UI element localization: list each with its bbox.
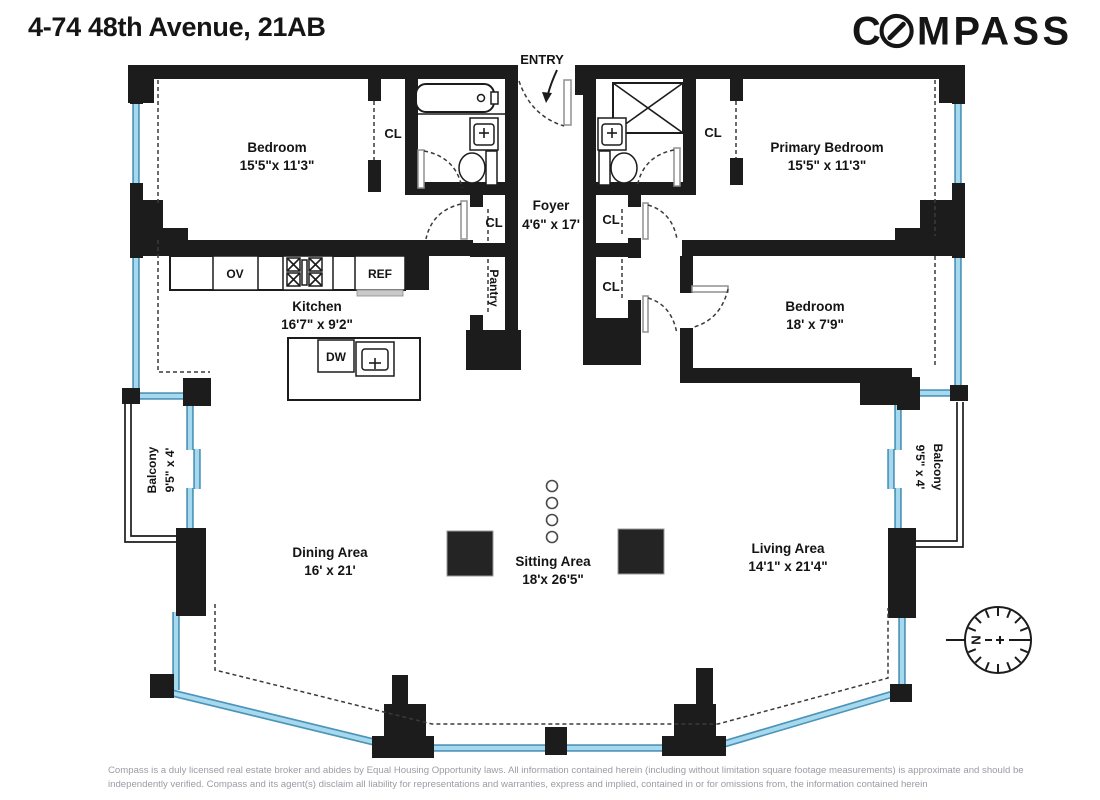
entry-label: ENTRY (520, 52, 564, 67)
closet-label: CL (602, 212, 619, 227)
kitchen-island (288, 338, 420, 400)
toilet-icon (459, 151, 497, 185)
balcony-right-name: Balcony (931, 444, 945, 491)
oven-label: OV (226, 267, 243, 281)
hallway-door-swing (648, 205, 677, 239)
dining-area-name: Dining Area (292, 545, 368, 560)
primary-bedroom-name: Primary Bedroom (770, 140, 883, 155)
bathtub-icon (416, 84, 498, 112)
entry-door-swing (519, 81, 564, 126)
disclaimer-line-2: independently verified. Compass and its … (108, 778, 1068, 792)
kitchen-dims: 16'7" x 9'2" (281, 317, 353, 332)
closet-label: CL (384, 126, 401, 141)
foyer-dims: 4'6" x 17' (522, 217, 580, 232)
pantry-label: Pantry (487, 269, 501, 307)
sitting-area-dims: 18'x 26'5" (522, 572, 584, 587)
bathroom-right-fixtures (598, 83, 683, 185)
dashed-lines (158, 80, 935, 724)
dishwasher-label: DW (326, 350, 347, 364)
kitchen-name: Kitchen (292, 299, 342, 314)
bedroom-top-left-dims: 15'5"x 11'3" (240, 158, 315, 173)
balcony-right-dims: 9'5" x 4' (913, 445, 927, 490)
closet-label: CL (704, 125, 721, 140)
hall-closet-door-swing (426, 204, 461, 239)
sitting-area-name: Sitting Area (515, 554, 591, 569)
compass-rose-icon: N (946, 607, 1031, 673)
room-labels: ENTRY Bedroom 15'5"x 11'3" Primary Bedro… (145, 52, 945, 587)
foyer-name: Foyer (533, 198, 571, 213)
column-dots (547, 481, 558, 543)
sink-icon (470, 118, 498, 150)
floorplan-drawing: N ENTRY Bedroom 15'5"x 11'3" Primary Bed… (0, 0, 1100, 800)
balcony-left-name: Balcony (145, 446, 159, 493)
refrigerator-label: REF (368, 267, 392, 281)
balcony-railings (125, 402, 963, 547)
primary-bedroom-dims: 15'5" x 11'3" (788, 158, 867, 173)
island-sink-icon (356, 342, 394, 376)
closet-label: CL (602, 279, 619, 294)
disclaimer-text: Compass is a duly licensed real estate b… (108, 764, 1068, 792)
living-area-dims: 14'1" x 21'4" (748, 559, 827, 574)
bedroom-right-door-swing (694, 289, 728, 327)
living-area-name: Living Area (751, 541, 825, 556)
disclaimer-line-1: Compass is a duly licensed real estate b… (108, 764, 1068, 778)
north-label: N (969, 635, 984, 644)
dining-area-dims: 16' x 21' (304, 563, 355, 578)
bedroom-top-left-name: Bedroom (247, 140, 306, 155)
sink-icon (598, 118, 626, 150)
bedroom-right-name: Bedroom (785, 299, 844, 314)
closet-label: CL (485, 215, 502, 230)
bedroom-right-dims: 18' x 7'9" (786, 317, 844, 332)
bath-right-door-swing (637, 150, 674, 187)
entry-arrow-icon (542, 70, 557, 103)
balcony-left-dims: 9'5" x 4' (163, 447, 177, 492)
toilet-icon (599, 151, 637, 185)
closet-door-swing (648, 298, 677, 334)
floorplan-page: 4-74 48th Avenue, 21AB C MPASS (0, 0, 1100, 800)
